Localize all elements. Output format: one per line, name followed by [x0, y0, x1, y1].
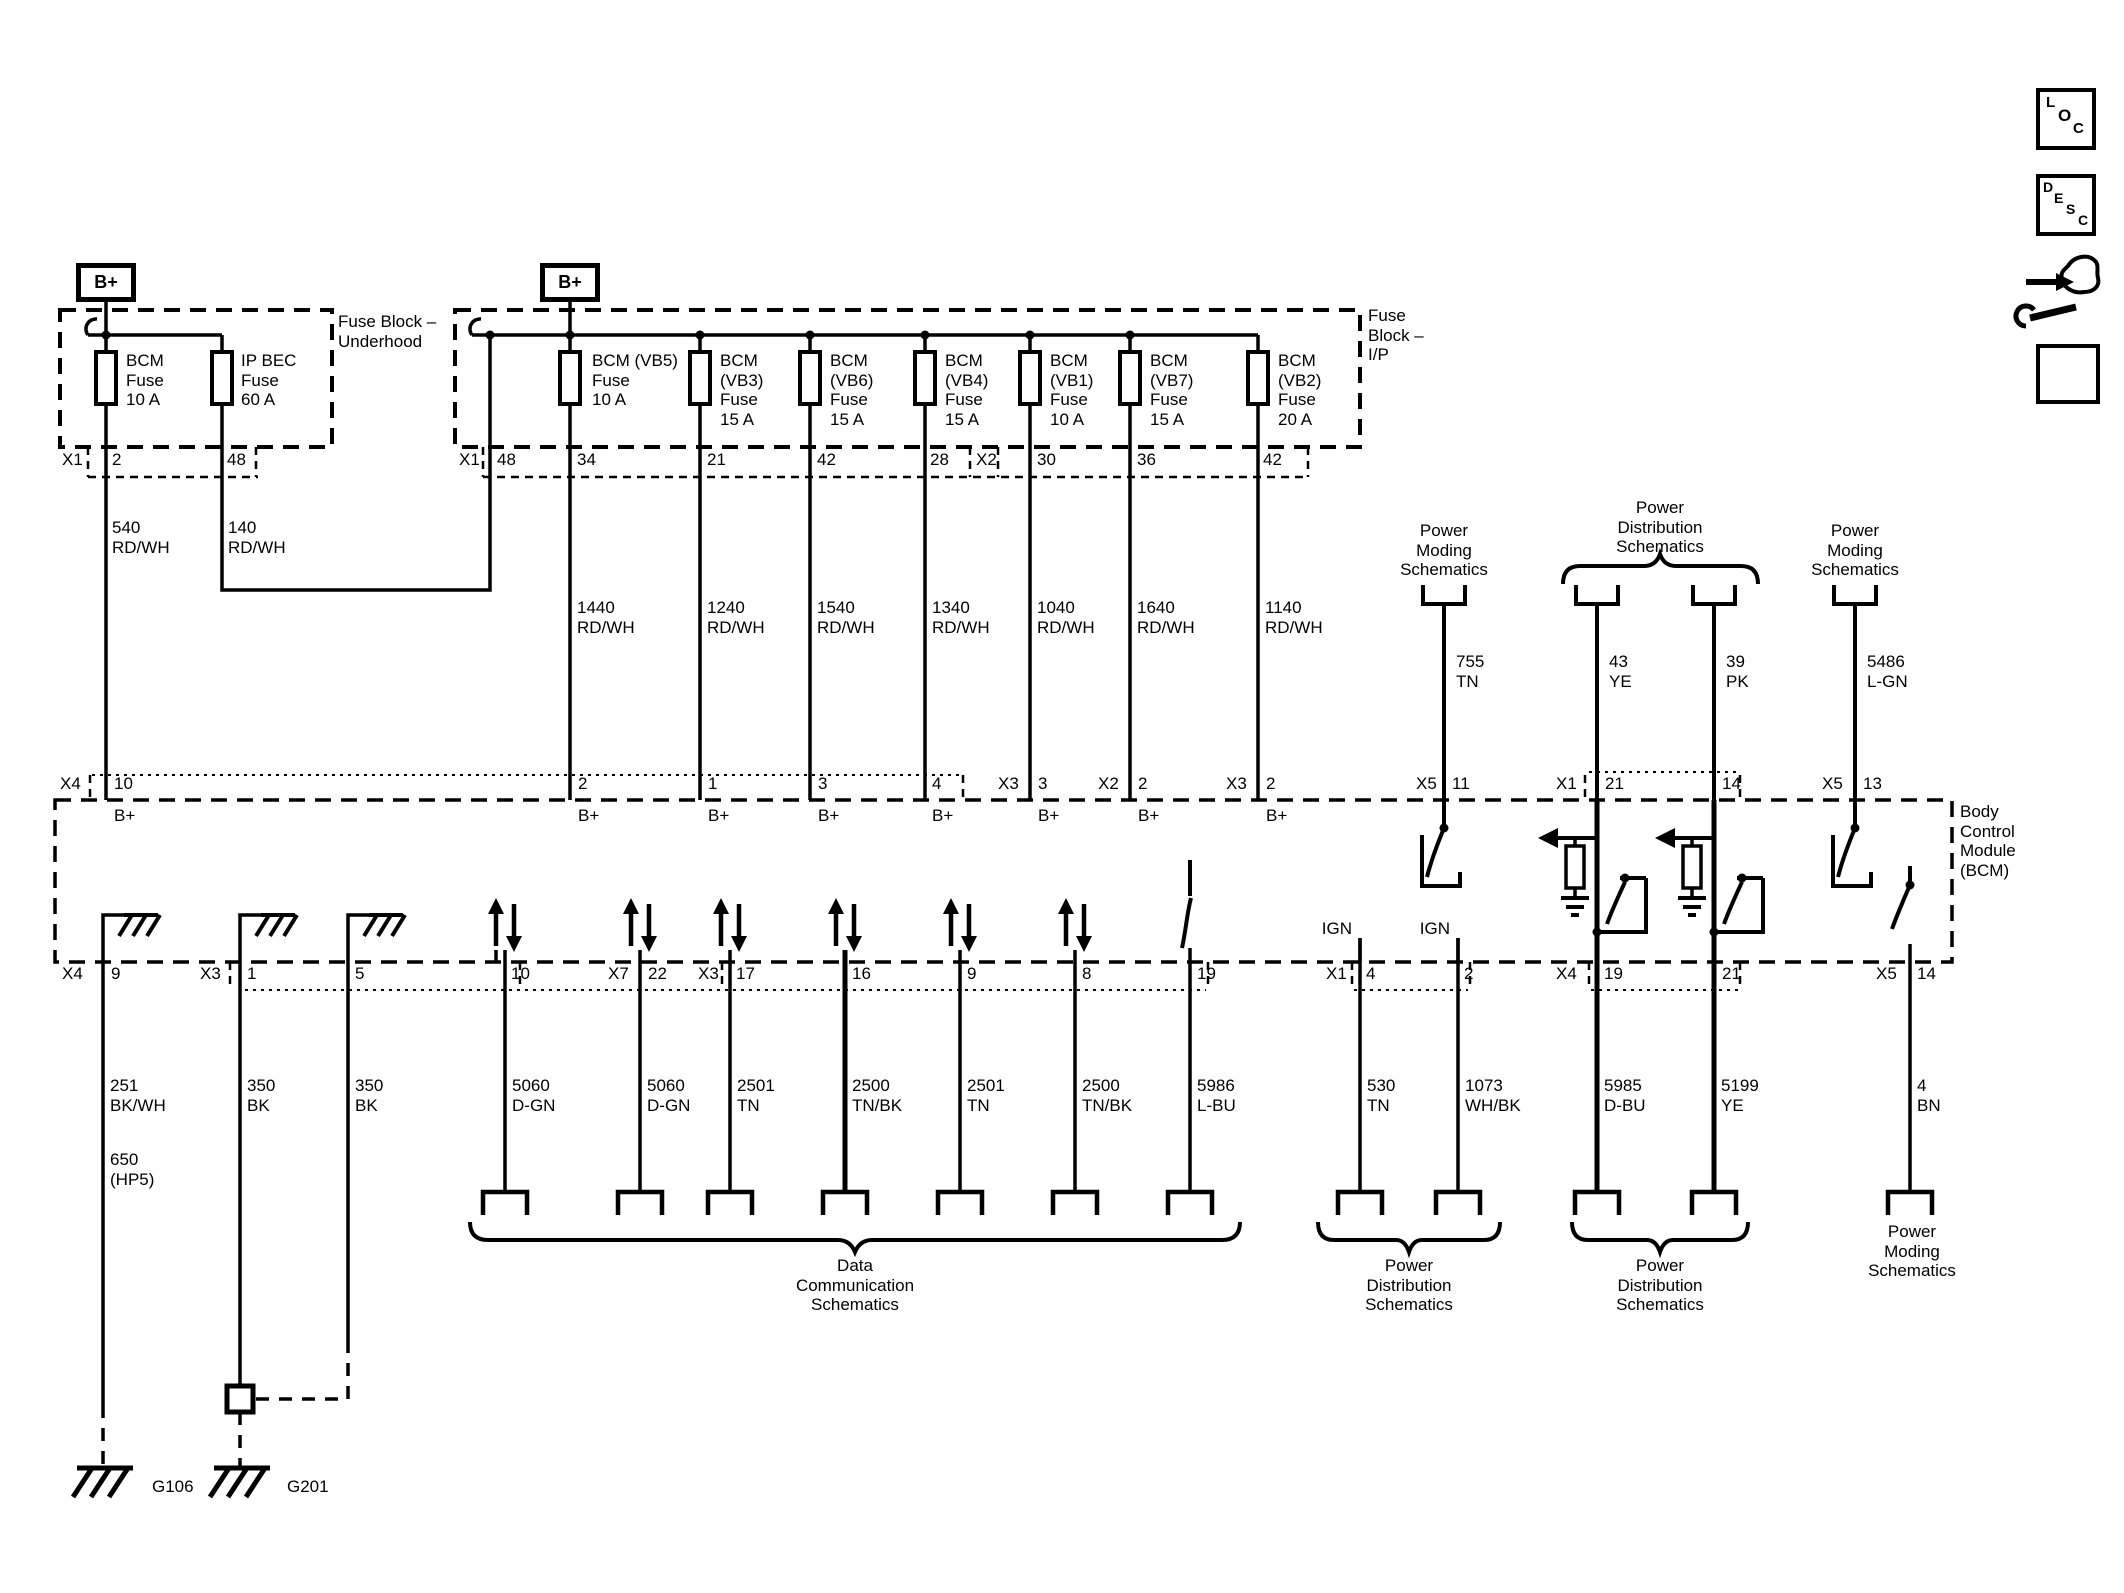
- ign-stubs: [1360, 938, 1458, 962]
- pin-label: 9: [967, 964, 976, 984]
- splice-box: [227, 1386, 253, 1412]
- connector-label: X5: [1876, 964, 1897, 984]
- underhood-block-label: Fuse Block – Underhood: [338, 312, 436, 351]
- pin-label: 17: [736, 964, 755, 984]
- brace-down-icon: [470, 1222, 1748, 1252]
- ign-label: IGN: [1322, 919, 1352, 939]
- pin-label: 14: [1917, 964, 1936, 984]
- switch-icon: [1182, 860, 1191, 948]
- connector-label: X1: [459, 450, 480, 470]
- bplus-pin-label: B+: [114, 806, 135, 826]
- connector-label: X5: [1822, 774, 1843, 794]
- pin-label: 11: [1452, 774, 1470, 794]
- connector-label: X1: [1326, 964, 1347, 984]
- wire-label: 5986 L-BU: [1197, 1076, 1236, 1115]
- wire-label: 1240 RD/WH: [707, 598, 765, 637]
- pin-label: 1: [708, 774, 717, 794]
- bottom-half-connectors: [483, 1192, 1932, 1215]
- pin-label: 5: [355, 964, 364, 984]
- half-connector-icon: [1423, 585, 1465, 604]
- pin-label: 19: [1197, 964, 1216, 984]
- reference-label: Power Moding Schematics: [1868, 1222, 1956, 1281]
- bplus-terminal: B+: [540, 263, 600, 302]
- ground-g201-icon: [210, 1468, 270, 1497]
- wire-label: 5486 L-GN: [1867, 652, 1908, 691]
- wire-label: 755 TN: [1456, 652, 1484, 691]
- connector-label: X3: [1226, 774, 1247, 794]
- fuse-label: BCM (VB4) Fuse 15 A: [945, 351, 988, 430]
- connector-label: X3: [998, 774, 1019, 794]
- pin-label: 2: [1266, 774, 1275, 794]
- wire-label: 1640 RD/WH: [1137, 598, 1195, 637]
- bidirectional-arrows-icon: [488, 898, 1092, 952]
- desc-letter: D: [2043, 179, 2053, 195]
- wire-label: 251 BK/WH: [110, 1076, 166, 1115]
- loc-letter: O: [2058, 106, 2071, 126]
- pin-label: 48: [497, 450, 516, 470]
- fuse-label: IP BEC Fuse 60 A: [241, 351, 296, 410]
- fuse-label: BCM (VB3) Fuse 15 A: [720, 351, 763, 430]
- pin-label: 2: [112, 450, 121, 470]
- wire-label: 140 RD/WH: [228, 518, 286, 557]
- junction-dots: [102, 331, 1719, 937]
- pin-label: 4: [1366, 964, 1375, 984]
- half-connector-icon: [1834, 585, 1876, 604]
- pin-label: 10: [511, 964, 530, 984]
- harness-connector-icon[interactable]: [2016, 257, 2098, 326]
- pin-label: 14: [1722, 774, 1741, 794]
- bcm-label: Body Control Module (BCM): [1960, 802, 2016, 881]
- pin-label: 21: [1605, 774, 1624, 794]
- wire-label: 530 TN: [1367, 1076, 1395, 1115]
- pin-label: 36: [1137, 450, 1156, 470]
- bplus-pin-label: B+: [1266, 806, 1287, 826]
- pin-label: 2: [1464, 964, 1473, 984]
- pin-label: 13: [1863, 774, 1882, 794]
- bplus-label: B+: [558, 272, 582, 293]
- wire-label: 2500 TN/BK: [852, 1076, 902, 1115]
- fuse-label: BCM (VB7) Fuse 15 A: [1150, 351, 1193, 430]
- pin-label: 2: [578, 774, 587, 794]
- wire-label: 5199 YE: [1721, 1076, 1759, 1115]
- wire-label: 540 RD/WH: [112, 518, 170, 557]
- connector-label: X5: [1416, 774, 1437, 794]
- pin-label: 1: [247, 964, 256, 984]
- brace-up-icon: [1563, 554, 1758, 584]
- reference-label: Data Communication Schematics: [796, 1256, 914, 1315]
- wire-label: 5060 D-GN: [512, 1076, 555, 1115]
- bplus-pin-label: B+: [708, 806, 729, 826]
- pin-label: 42: [1263, 450, 1282, 470]
- pin-box-dotted: [92, 772, 1738, 990]
- fuse-label: BCM (VB5) Fuse 10 A: [592, 351, 678, 410]
- loc-letter: C: [2073, 120, 2084, 137]
- wire-label: 2501 TN: [737, 1076, 775, 1115]
- pin-label: 34: [577, 450, 596, 470]
- connector-label: X1: [62, 450, 83, 470]
- half-connector-icon: [1576, 585, 1618, 604]
- wiring-layer: [0, 0, 2124, 1593]
- connector-label: X7: [608, 964, 629, 984]
- reference-wires-top: [1423, 554, 1876, 828]
- wire-label: 1073 WH/BK: [1465, 1076, 1521, 1115]
- wire-label: 5060 D-GN: [647, 1076, 690, 1115]
- pin-box-dashes: [88, 447, 1740, 990]
- pin-label: 21: [707, 450, 726, 470]
- desc-letter: E: [2054, 190, 2063, 206]
- pin-label: 8: [1082, 964, 1091, 984]
- bplus-pin-label: B+: [578, 806, 599, 826]
- connector-label: X1: [1556, 774, 1577, 794]
- pin-label: 42: [817, 450, 836, 470]
- ip-block-label: Fuse Block – I/P: [1368, 306, 1424, 365]
- bplus-pin-label: B+: [1038, 806, 1059, 826]
- desc-letter: S: [2066, 201, 2075, 217]
- bcm-outline: [55, 800, 1952, 962]
- ign-label: IGN: [1420, 919, 1450, 939]
- pin-label: 21: [1722, 964, 1741, 984]
- wire-label: 2500 TN/BK: [1082, 1076, 1132, 1115]
- wire-label: 350 BK: [247, 1076, 275, 1115]
- forward-arrow-button[interactable]: [2036, 344, 2100, 404]
- connector-label: X3: [698, 964, 719, 984]
- connector-label: X4: [60, 774, 81, 794]
- pin-label: 30: [1037, 450, 1056, 470]
- fuse-label: BCM (VB1) Fuse 10 A: [1050, 351, 1093, 430]
- ground-g106-icon: [73, 1468, 133, 1497]
- reference-label: Power Distribution Schematics: [1616, 498, 1704, 557]
- bplus-pin-label: B+: [1138, 806, 1159, 826]
- bplus-pin-label: B+: [818, 806, 839, 826]
- reference-label: Power Distribution Schematics: [1616, 1256, 1704, 1315]
- reference-label: Power Distribution Schematics: [1365, 1256, 1453, 1315]
- pin-label: 48: [227, 450, 246, 470]
- reference-label: Power Moding Schematics: [1811, 521, 1899, 580]
- loc-letter: L: [2046, 94, 2055, 111]
- wire-label: 39 PK: [1726, 652, 1749, 691]
- ground-label: G201: [287, 1477, 329, 1497]
- wire-label: 1140 RD/WH: [1265, 598, 1323, 637]
- wire-label: 43 YE: [1609, 652, 1632, 691]
- wire-label: 2501 TN: [967, 1076, 1005, 1115]
- wire-label: 1040 RD/WH: [1037, 598, 1095, 637]
- pin-label: 4: [932, 774, 941, 794]
- wire-label: 350 BK: [355, 1076, 383, 1115]
- half-connector-icon: [1693, 585, 1735, 604]
- bplus-pin-label: B+: [932, 806, 953, 826]
- pin-label: 2: [1138, 774, 1147, 794]
- fuse-label: BCM (VB2) Fuse 20 A: [1278, 351, 1321, 430]
- wire-label: 650 (HP5): [110, 1150, 154, 1189]
- connector-label: X3: [200, 964, 221, 984]
- chassis-ground-icon: [119, 915, 405, 936]
- wire-label: 1540 RD/WH: [817, 598, 875, 637]
- desc-letter: C: [2078, 212, 2088, 228]
- pin-label: 9: [111, 964, 120, 984]
- pin-label: 3: [818, 774, 827, 794]
- connector-label: X2: [1098, 774, 1119, 794]
- fuse-label: BCM Fuse 10 A: [126, 351, 164, 410]
- wire-label: 1440 RD/WH: [577, 598, 635, 637]
- desc-button[interactable]: D E S C: [2036, 174, 2096, 236]
- pin-label: 16: [852, 964, 871, 984]
- pin-label: 19: [1604, 964, 1623, 984]
- ground-label: G106: [152, 1477, 194, 1497]
- connector-label: X4: [1556, 964, 1577, 984]
- loc-button[interactable]: L O C: [2036, 88, 2096, 150]
- pin-label: 3: [1038, 774, 1047, 794]
- wiring-diagram-page: L O C D E S C B+ B+ Fuse Block – Underho…: [0, 0, 2124, 1593]
- pin-label: 22: [648, 964, 667, 984]
- bcm-output-wires-thick: [845, 950, 1714, 1192]
- wire-label: 4 BN: [1917, 1076, 1941, 1115]
- wire-label: 5985 D-BU: [1604, 1076, 1646, 1115]
- pin-label: 10: [114, 774, 133, 794]
- reference-label: Power Moding Schematics: [1400, 521, 1488, 580]
- wire-label: 1340 RD/WH: [932, 598, 990, 637]
- fuse-label: BCM (VB6) Fuse 15 A: [830, 351, 873, 430]
- bplus-label: B+: [94, 272, 118, 293]
- connector-label: X2: [976, 450, 997, 470]
- connector-label: X4: [62, 964, 83, 984]
- bplus-terminal: B+: [76, 263, 136, 302]
- pin-label: 28: [930, 450, 949, 470]
